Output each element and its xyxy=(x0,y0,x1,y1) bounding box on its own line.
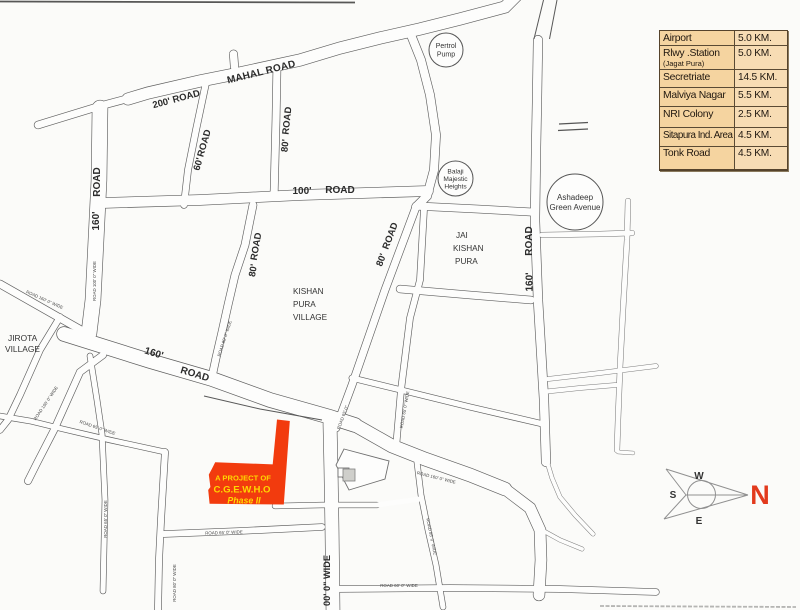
svg-text:Phase II: Phase II xyxy=(227,496,261,506)
svg-text:Balaji: Balaji xyxy=(447,169,464,176)
svg-text:Pump: Pump xyxy=(437,52,455,59)
svg-text:ROAD: ROAD xyxy=(325,185,354,196)
svg-text:ROAD: ROAD xyxy=(524,226,535,255)
svg-text:80': 80' xyxy=(247,263,260,278)
svg-text:Majestic: Majestic xyxy=(443,176,468,183)
svg-text:C.G.E.W.H.O: C.G.E.W.H.O xyxy=(213,485,271,496)
svg-text:KISHAN: KISHAN xyxy=(293,287,324,296)
svg-text:100': 100' xyxy=(292,186,311,197)
svg-text:Green Avenue: Green Avenue xyxy=(549,203,601,212)
svg-text:ROAD: ROAD xyxy=(92,167,103,196)
svg-text:80': 80' xyxy=(279,139,291,153)
svg-text:PURA: PURA xyxy=(455,257,478,266)
svg-text:KISHAN: KISHAN xyxy=(453,244,484,253)
svg-text:VILLAGE: VILLAGE xyxy=(5,344,40,354)
svg-text:Pertrol: Pertrol xyxy=(436,43,457,50)
svg-text:VILLAGE: VILLAGE xyxy=(293,313,328,322)
svg-text:N: N xyxy=(750,480,770,510)
svg-text:160': 160' xyxy=(91,211,102,230)
svg-text:160': 160' xyxy=(525,272,536,291)
svg-text:A PROJECT OF: A PROJECT OF xyxy=(215,474,271,483)
svg-text:JIROTA: JIROTA xyxy=(8,333,38,343)
svg-text:S: S xyxy=(670,490,677,501)
svg-text:JAI: JAI xyxy=(456,231,468,240)
svg-text:W: W xyxy=(694,471,704,482)
svg-text:Heights: Heights xyxy=(444,184,467,191)
svg-text:Ashadeep: Ashadeep xyxy=(557,193,594,202)
svg-text:00' 0" WIDE: 00' 0" WIDE xyxy=(322,555,332,606)
svg-text:ROAD 60' 0" WIDE: ROAD 60' 0" WIDE xyxy=(380,583,418,588)
svg-text:PURA: PURA xyxy=(293,300,316,309)
svg-text:ROAD 100' 0" WIDE: ROAD 100' 0" WIDE xyxy=(92,261,97,301)
svg-text:ROAD 80' 0" WIDE: ROAD 80' 0" WIDE xyxy=(172,564,177,602)
svg-text:ROAD 65' 0" WIDE: ROAD 65' 0" WIDE xyxy=(103,500,108,538)
svg-text:E: E xyxy=(696,516,703,527)
